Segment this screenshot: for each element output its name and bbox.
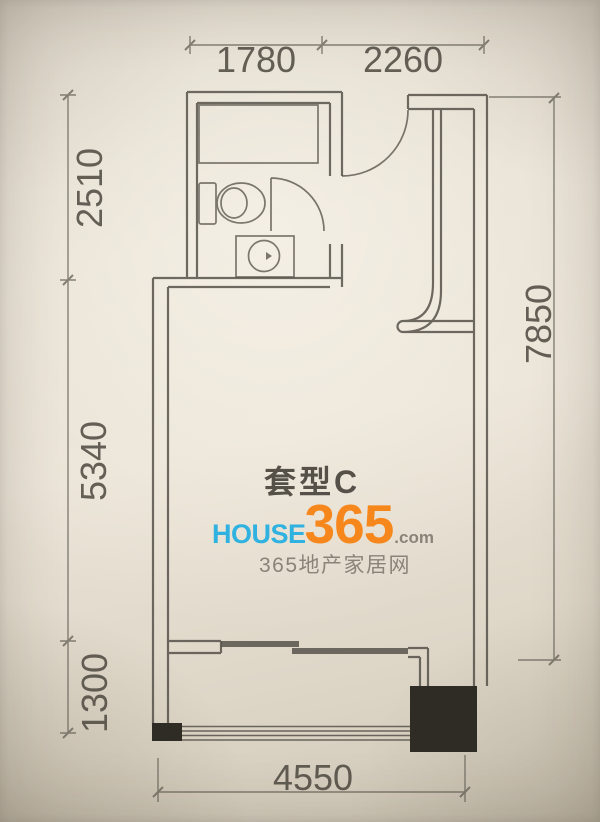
entry-door-arc [342,110,408,176]
dim-label-top-1780: 1780 [196,42,316,78]
left-wall [153,278,168,725]
shaft-wall [398,110,475,332]
dim-label-right-7850: 7850 [521,264,557,384]
dim-ticks [63,40,559,797]
floorplan-photo: 1780 2260 2510 5340 1300 7850 4550 套型C H… [0,0,600,822]
sliding-door-leaf-a [221,641,299,647]
doors [271,110,408,231]
entry-and-right-wall [408,95,487,686]
dim-label-left-2510: 2510 [72,128,108,248]
dimension-lines [60,36,561,802]
logo-365-text: 365 [305,497,394,552]
dim-label-top-2260: 2260 [343,42,463,78]
shower-tray [199,105,318,163]
balcony-window [182,727,410,741]
balcony-door-wall [168,641,428,686]
column-right [410,686,477,752]
column-left [152,723,182,741]
sliding-door-leaf-b [292,648,408,654]
toilet-icon [199,183,265,224]
dim-label-bottom-4550: 4550 [253,760,373,796]
dim-label-left-1300: 1300 [77,633,113,753]
walls [153,92,487,740]
bathroom-door-arc [271,178,324,231]
logo-domain-text: .com [394,529,434,546]
house365-logo: HOUSE365.com [212,497,434,552]
logo-tagline: 365地产家居网 [240,549,430,579]
basin-icon [236,236,294,277]
fixtures [199,105,318,277]
bathroom-walls [153,92,342,287]
dim-label-left-5340: 5340 [76,401,112,521]
logo-house-text: HOUSE [212,521,306,548]
